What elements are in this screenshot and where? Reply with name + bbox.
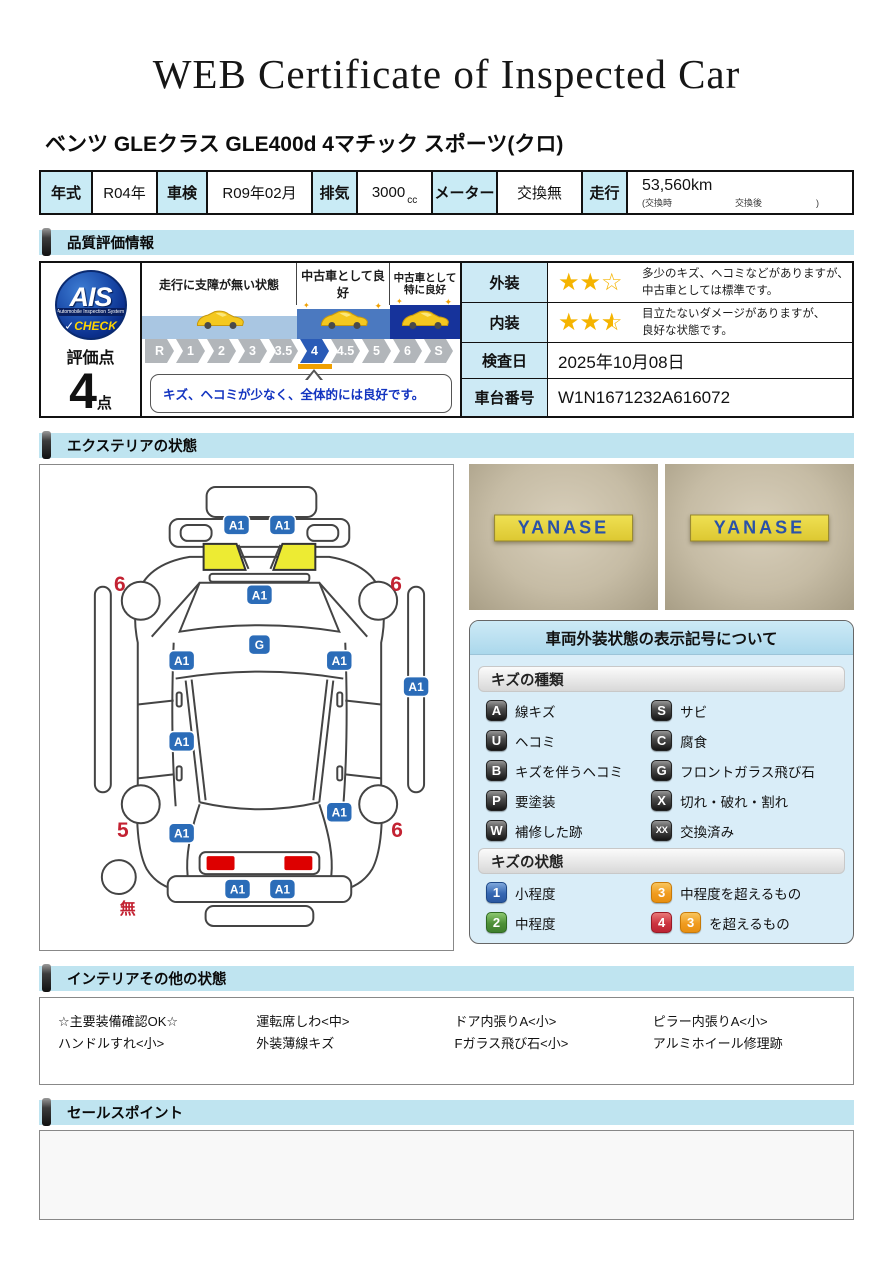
page-title: WEB Certificate of Inspected Car	[0, 0, 893, 98]
svg-text:A1: A1	[229, 518, 245, 532]
damage-symbol-legend: 車両外装状態の表示記号について キズの種類 A線キズ Sサビ Uヘコミ C腐食 …	[469, 620, 854, 944]
interior-rating-text: 目立たないダメージがありますが、良好な状態です。	[642, 306, 825, 338]
interior-item: 外装薄線キズ	[248, 1033, 446, 1052]
svg-text:A1: A1	[275, 883, 291, 897]
spec-label-year: 年式	[41, 172, 91, 213]
headlight-left	[207, 856, 235, 870]
rating-scale: R 1 2 3 3.5 4 4.5 5 6 S	[142, 339, 460, 363]
section-header-quality: 品質評価情報	[39, 230, 854, 255]
zone-label-1: 走行に支障が無い状態	[142, 263, 297, 305]
scale-zone-labels: 走行に支障が無い状態 中古車として良好 中古車として特に良好	[142, 263, 460, 305]
wheel-label-front-right: 6	[391, 819, 403, 842]
front-plate	[206, 906, 314, 926]
marker-front-bumper-right: A1	[269, 879, 295, 899]
scale-tick-2: 2	[207, 339, 236, 363]
spec-label-meter: メーター	[431, 172, 496, 213]
legend-item: 1小程度	[486, 882, 651, 903]
car-name: ベンツ GLEクラス GLE400d 4マチック スポーツ(クロ)	[45, 128, 854, 158]
inspection-photos: YANASE YANASE	[469, 464, 854, 610]
interior-item: アルミホイール修理跡	[645, 1033, 843, 1052]
ais-logo-subtext: Automobile Inspection System	[57, 308, 125, 316]
interior-item: ☆主要装備確認OK☆	[50, 1011, 248, 1030]
mileage-exchange-note: (交換時 交換後 )	[642, 196, 819, 209]
marker-rear-bumper-right: A1	[269, 515, 295, 535]
side-molding-left	[95, 587, 111, 793]
legend-item: Sサビ	[651, 700, 845, 721]
scale-tick-5: 5	[362, 339, 391, 363]
exterior-rating-text: 多少のキズ、ヘコミなどがありますが、中古車としては標準です。	[642, 266, 849, 298]
section-header-exterior: エクステリアの状態	[39, 433, 854, 458]
legend-item: C腐食	[651, 730, 845, 751]
interior-item: ピラー内張りA<小>	[645, 1011, 843, 1030]
wheel-front-left	[122, 785, 160, 823]
car-icon	[318, 307, 370, 336]
spec-value-mileage: 53,560km (交換時 交換後 )	[626, 172, 852, 213]
spec-table: 年式 R04年 車検 R09年02月 排気 3000cc メーター 交換無 走行…	[39, 170, 854, 215]
spec-label-shaken: 車検	[156, 172, 206, 213]
score-value: 4 点	[69, 366, 112, 416]
marker-rear-glass: A1	[246, 585, 272, 605]
scale-tick-4-active: 4	[300, 339, 329, 363]
quality-evaluation-box: AIS Automobile Inspection System ✓CHECK …	[39, 261, 854, 418]
scale-zone-bands: ✦ ✦ ✦ ✦	[142, 305, 460, 339]
svg-text:A1: A1	[332, 806, 348, 820]
scale-tick-r: R	[145, 339, 174, 363]
rating-scale-column: 走行に支障が無い状態 中古車として良好 中古車として特に良好	[142, 263, 462, 416]
wheel-label-rear-right: 6	[390, 573, 402, 596]
marker-front-door-left: A1	[169, 731, 195, 751]
marker-front-fender-right: A1	[326, 802, 352, 822]
sparkle-icon: ✦	[444, 297, 452, 308]
scale-tick-4-5: 4.5	[331, 339, 360, 363]
yanase-sign: YANASE	[494, 515, 634, 542]
headlight-right	[284, 856, 312, 870]
legend-item: 43を超えるもの	[651, 912, 845, 933]
spec-label-mileage: 走行	[581, 172, 626, 213]
marker-rear-door-left: A1	[169, 651, 195, 671]
zone-band-light	[142, 316, 297, 339]
interior-condition-box: ☆主要装備確認OK☆ 運転席しわ<中> ドア内張りA<小> ピラー内張りA<小>…	[39, 997, 854, 1085]
scale-tick-3: 3	[238, 339, 267, 363]
svg-text:G: G	[255, 638, 264, 652]
damage-kind-list: A線キズ Sサビ Uヘコミ C腐食 Bキズを伴うヘコミ Gフロントガラス飛び石 …	[478, 700, 845, 841]
certificate-page: WEB Certificate of Inspected Car ベンツ GLE…	[0, 0, 893, 1263]
yanase-sign: YANASE	[690, 515, 830, 542]
section-accent-bar	[42, 431, 51, 459]
ais-logo-column: AIS Automobile Inspection System ✓CHECK …	[41, 263, 142, 416]
table-row-inspection-date: 検査日 2025年10月08日	[462, 343, 852, 379]
spec-value-displacement: 3000cc	[356, 172, 431, 213]
legend-item: Uヘコミ	[486, 730, 651, 751]
marker-roof-glass-chip: G	[248, 635, 270, 655]
door-handle	[177, 766, 182, 780]
marker-side-molding-right: A1	[403, 677, 429, 697]
legend-item: XX交換済み	[651, 820, 845, 841]
legend-item: A線キズ	[486, 700, 651, 721]
spare-tire-label: 無	[120, 899, 136, 918]
section-accent-bar	[42, 964, 51, 992]
car-icon	[194, 307, 246, 336]
scale-tick-s: S	[424, 339, 453, 363]
exterior-star-rating: ★★☆	[558, 271, 642, 295]
interior-item: 運転席しわ<中>	[248, 1011, 446, 1030]
legend-item: P要塗装	[486, 790, 651, 811]
door-handle	[337, 693, 342, 707]
svg-text:A1: A1	[275, 518, 291, 532]
marker-front-bumper-left: A1	[225, 879, 251, 899]
zone-band-mid: ✦ ✦	[297, 309, 390, 339]
damage-state-list: 1小程度 3中程度を超えるもの 2中程度 43を超えるもの	[478, 882, 845, 933]
scale-tick-1: 1	[176, 339, 205, 363]
check-icon: ✓	[64, 319, 74, 333]
legend-item: W補修した跡	[486, 820, 651, 841]
spec-value-year: R04年	[91, 172, 156, 213]
section-header-sales: セールスポイント	[39, 1100, 854, 1125]
legend-item: X切れ・破れ・割れ	[651, 790, 845, 811]
zone-band-dark: ✦ ✦	[390, 305, 460, 339]
svg-text:A1: A1	[174, 827, 190, 841]
sparkle-icon: ✦	[374, 301, 382, 312]
front-bumper	[168, 876, 352, 902]
photo-yanase-sign-2: YANASE	[665, 464, 854, 610]
marker-front-fender-left: A1	[169, 823, 195, 843]
marker-rear-door-right: A1	[326, 651, 352, 671]
ais-logo: AIS Automobile Inspection System ✓CHECK	[55, 270, 127, 340]
interior-item: ハンドルすれ<小>	[50, 1033, 248, 1052]
wheel-front-right	[359, 785, 397, 823]
svg-text:A1: A1	[174, 735, 190, 749]
scale-tick-3-5: 3.5	[269, 339, 298, 363]
interior-item: Fガラス飛び石<小>	[447, 1033, 645, 1052]
rear-garnish	[207, 487, 317, 517]
legend-item: 3中程度を超えるもの	[651, 882, 845, 903]
spec-value-shaken: R09年02月	[206, 172, 311, 213]
sales-point-box	[39, 1130, 854, 1220]
wheel-label-front-left: 5	[117, 819, 129, 842]
spare-tire	[102, 860, 136, 894]
section-header-interior: インテリアその他の状態	[39, 966, 854, 991]
legend-kind-header: キズの種類	[478, 666, 845, 692]
legend-title: 車両外装状態の表示記号について	[470, 621, 853, 655]
spec-value-meter: 交換無	[496, 172, 581, 213]
inspection-date: 2025年10月08日	[548, 343, 852, 378]
car-icon	[399, 307, 451, 336]
table-row-exterior-rating: 外装 ★★☆ 多少のキズ、ヘコミなどがありますが、中古車としては標準です。	[462, 263, 852, 303]
spec-label-displacement: 排気	[311, 172, 356, 213]
legend-item: Bキズを伴うヘコミ	[486, 760, 651, 781]
interior-star-rating: ★★☆★	[558, 311, 642, 335]
photo-yanase-sign-1: YANASE	[469, 464, 658, 610]
door-handle	[177, 693, 182, 707]
sparkle-icon: ✦	[396, 297, 403, 306]
evaluation-comment: キズ、ヘコミが少なく、全体的には良好です。	[150, 374, 452, 413]
displacement-unit: cc	[407, 195, 417, 206]
scale-tick-6: 6	[393, 339, 422, 363]
quality-detail-table: 外装 ★★☆ 多少のキズ、ヘコミなどがありますが、中古車としては標準です。 内装…	[462, 263, 852, 416]
section-accent-bar	[42, 1098, 51, 1126]
svg-text:A1: A1	[332, 654, 348, 668]
door-handle	[337, 766, 342, 780]
svg-text:A1: A1	[408, 680, 424, 694]
table-row-interior-rating: 内装 ★★☆★ 目立たないダメージがありますが、良好な状態です。	[462, 303, 852, 343]
section-accent-bar	[42, 228, 51, 256]
interior-item: ドア内張りA<小>	[447, 1011, 645, 1030]
svg-text:A1: A1	[252, 588, 268, 602]
svg-text:A1: A1	[230, 883, 246, 897]
legend-item: Gフロントガラス飛び石	[651, 760, 845, 781]
legend-state-header: キズの状態	[478, 848, 845, 874]
sparkle-icon: ✦	[303, 301, 310, 310]
svg-text:A1: A1	[174, 654, 190, 668]
marker-rear-bumper-left: A1	[224, 515, 250, 535]
table-row-vin: 車台番号 W1N1671232A616072	[462, 379, 852, 416]
car-damage-diagram: A1 A1 A1 G A1 A1 A1 A1 A1 A1 A1 A1	[39, 464, 454, 951]
wheel-rear-left	[122, 582, 160, 620]
legend-item: 2中程度	[486, 912, 651, 933]
vin-number: W1N1671232A616072	[548, 379, 852, 416]
ais-check-label: ✓CHECK	[57, 319, 125, 333]
zone-label-2: 中古車として良好	[297, 263, 390, 305]
wheel-label-rear-left: 6	[114, 573, 126, 596]
